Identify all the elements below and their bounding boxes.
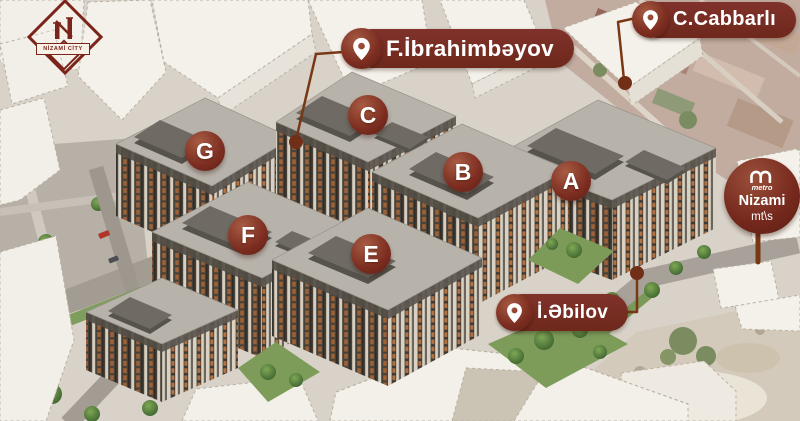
building-marker-b[interactable]: B bbox=[443, 152, 483, 192]
street-label-text: F.İbrahimbəyov bbox=[352, 29, 574, 68]
metro-logo-icon bbox=[749, 169, 775, 183]
building-marker-a[interactable]: A bbox=[551, 161, 591, 201]
location-pin-icon bbox=[496, 294, 533, 331]
logo-title: NİZAMİ CİTY bbox=[36, 43, 90, 55]
building-marker-c[interactable]: C bbox=[348, 95, 388, 135]
metro-logo-text: metro bbox=[752, 184, 773, 192]
location-pin-icon bbox=[632, 1, 669, 38]
location-pin-icon bbox=[341, 28, 382, 69]
logo-building-glyph bbox=[48, 13, 78, 41]
metro-station-badge[interactable]: metro Nizami mt\s bbox=[724, 158, 800, 234]
building-marker-f[interactable]: F bbox=[228, 215, 268, 255]
building-marker-e[interactable]: E bbox=[351, 234, 391, 274]
nizami-city-logo: NİZAMİ CİTY bbox=[20, 0, 110, 78]
metro-station-name: Nizami bbox=[739, 194, 786, 209]
street-label-ibrahimbeyov[interactable]: F.İbrahimbəyov bbox=[341, 28, 574, 69]
nizami-city-masterplan: NİZAMİ CİTY F.İbrahimbəyov C.Cabbarlı İ.… bbox=[0, 0, 800, 421]
street-label-cabbarli[interactable]: C.Cabbarlı bbox=[632, 1, 796, 38]
metro-station-type: mt\s bbox=[751, 211, 773, 223]
street-label-abilov[interactable]: İ.Əbilov bbox=[496, 294, 628, 331]
building-marker-g[interactable]: G bbox=[185, 131, 225, 171]
